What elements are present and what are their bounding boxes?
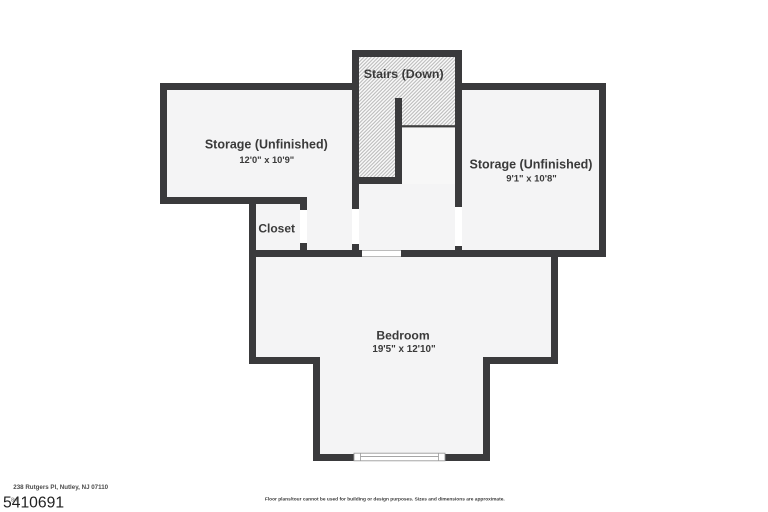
svg-text:Closet: Closet: [258, 221, 295, 235]
svg-text:Stairs (Down): Stairs (Down): [364, 67, 444, 81]
svg-text:9'1" x 10'8": 9'1" x 10'8": [506, 173, 557, 184]
svg-text:12'0" x 10'9": 12'0" x 10'9": [239, 155, 294, 165]
svg-text:Storage (Unfinished): Storage (Unfinished): [470, 158, 593, 172]
svg-text:Storage (Unfinished): Storage (Unfinished): [205, 138, 328, 152]
svg-text:Floor plans/tour cannot be use: Floor plans/tour cannot be used for buil…: [265, 496, 505, 502]
svg-text:5410691: 5410691: [3, 494, 64, 511]
svg-text:238 Rutgers Pl, Nutley, NJ 071: 238 Rutgers Pl, Nutley, NJ 07110: [13, 484, 108, 491]
svg-text:Bedroom: Bedroom: [376, 328, 429, 342]
svg-text:19'5" x 12'10": 19'5" x 12'10": [372, 344, 436, 355]
